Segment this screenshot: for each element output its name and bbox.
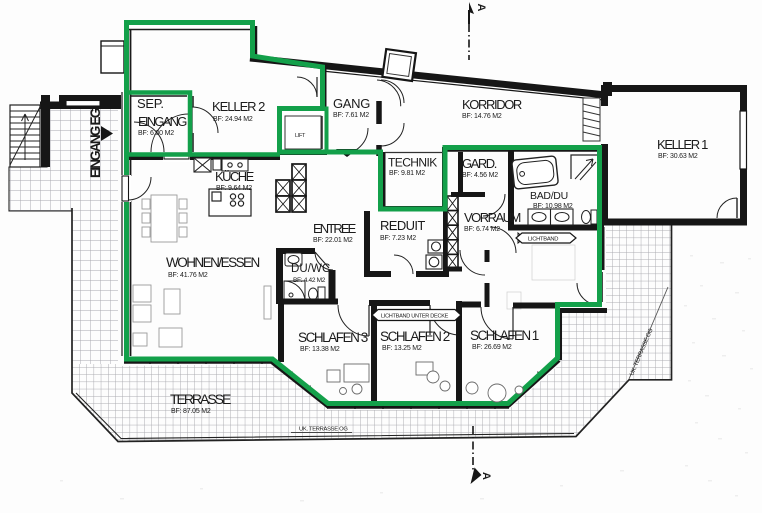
svg-text:BF: 7.23 M2: BF: 7.23 M2: [380, 235, 416, 242]
svg-text:BAD/DU: BAD/DU: [530, 190, 568, 202]
svg-text:KELLER 2: KELLER 2: [212, 99, 265, 114]
svg-text:GANG: GANG: [333, 96, 370, 111]
svg-text:BF: 14.76 M2: BF: 14.76 M2: [462, 113, 502, 120]
svg-text:BF: 30.63 M2: BF: 30.63 M2: [658, 153, 698, 160]
svg-text:REDUIT: REDUIT: [380, 218, 425, 233]
svg-text:BF: 24.94 M2: BF: 24.94 M2: [213, 116, 253, 123]
svg-text:BF: 9.81 M2: BF: 9.81 M2: [389, 170, 425, 177]
svg-text:BF: 41.76 M2: BF: 41.76 M2: [168, 272, 208, 279]
svg-text:BF: 7.61 M2: BF: 7.61 M2: [333, 112, 369, 119]
svg-text:BF: 26.69 M2: BF: 26.69 M2: [472, 344, 512, 351]
svg-text:BF: 6.00 M2: BF: 6.00 M2: [138, 130, 174, 137]
svg-text:A: A: [480, 472, 492, 480]
svg-text:SCHLAFEN 3: SCHLAFEN 3: [298, 330, 368, 345]
svg-text:TERRASSE: TERRASSE: [170, 391, 231, 407]
svg-text:DU/WC: DU/WC: [291, 263, 330, 275]
svg-text:BF: 87.05 M2: BF: 87.05 M2: [171, 408, 211, 415]
svg-text:TECHNIK: TECHNIK: [388, 156, 437, 170]
svg-text:KORRIDOR: KORRIDOR: [462, 97, 522, 112]
svg-text:SCHLAFEN 1: SCHLAFEN 1: [470, 328, 539, 343]
svg-text:WOHNEN/ESSEN: WOHNEN/ESSEN: [166, 255, 260, 270]
svg-text:BF: 13.25 M2: BF: 13.25 M2: [382, 345, 422, 352]
svg-text:BF: 13.38 M2: BF: 13.38 M2: [300, 346, 340, 353]
svg-text:EINGANG EG: EINGANG EG: [88, 108, 103, 178]
svg-text:BF: 4.56 M2: BF: 4.56 M2: [462, 172, 498, 179]
svg-text:LIFT: LIFT: [295, 133, 306, 139]
svg-text:SEP.: SEP.: [137, 96, 164, 111]
svg-text:BF: 6.74 M2: BF: 6.74 M2: [464, 226, 500, 233]
svg-text:VORRAUM: VORRAUM: [464, 210, 521, 225]
svg-text:KELLER 1: KELLER 1: [657, 137, 708, 152]
svg-text:SCHLAFEN 2: SCHLAFEN 2: [380, 329, 450, 344]
svg-text:KÜCHE: KÜCHE: [215, 169, 255, 184]
svg-text:EINGANG: EINGANG: [138, 114, 187, 129]
svg-text:A: A: [475, 4, 487, 12]
svg-text:LICHTBAND UNTER DECKE: LICHTBAND UNTER DECKE: [381, 314, 449, 320]
svg-text:LICHTBAND: LICHTBAND: [528, 237, 558, 243]
svg-text:BF: 9.64 M2: BF: 9.64 M2: [216, 185, 252, 192]
svg-text:GARD.: GARD.: [462, 156, 497, 171]
svg-text:BF: 10.98 M2: BF: 10.98 M2: [533, 203, 573, 210]
svg-text:UK. TERRASSE OG: UK. TERRASSE OG: [299, 427, 348, 433]
svg-text:ENTREE: ENTREE: [313, 221, 357, 236]
svg-text:BF: 22.01 M2: BF: 22.01 M2: [313, 237, 353, 244]
svg-text:BF: 4.42 M2: BF: 4.42 M2: [293, 277, 326, 284]
